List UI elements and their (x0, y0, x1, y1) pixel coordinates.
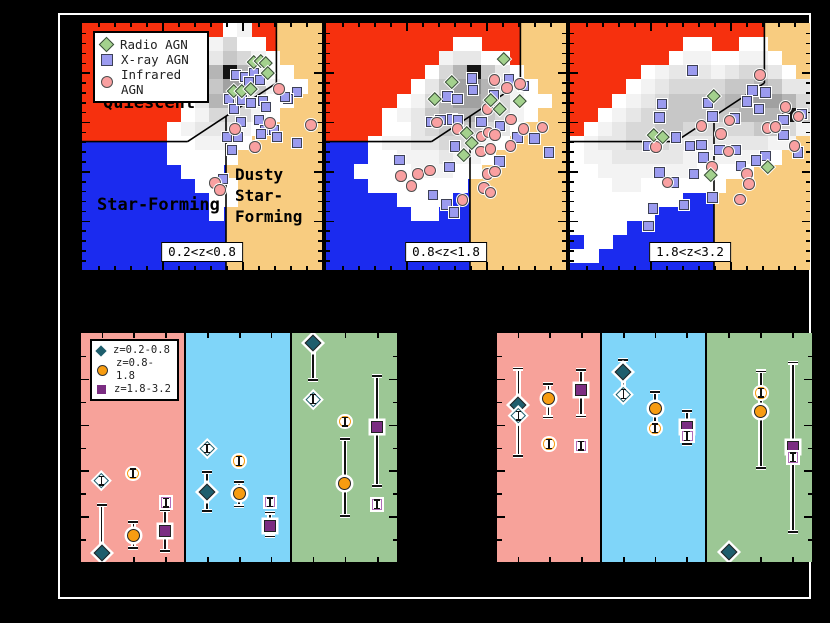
axis-tick (762, 23, 764, 27)
axis-tick (82, 171, 90, 173)
axis-tick (326, 161, 330, 163)
circle-marker (514, 78, 526, 90)
square-marker (657, 99, 668, 110)
axis-tick (806, 211, 810, 213)
circle-marker (505, 140, 517, 152)
error-bar-cap (202, 509, 212, 513)
error-bar-cap-core (513, 368, 523, 370)
axis-tick (794, 23, 796, 27)
axis-tick (306, 266, 308, 270)
square-marker (159, 525, 171, 537)
axis-tick (114, 266, 116, 270)
axis-tick (666, 266, 668, 270)
axis-tick (162, 262, 164, 270)
axis-tick (570, 53, 574, 55)
axis-tick (534, 266, 536, 270)
square-marker (760, 87, 771, 98)
axis-tick (82, 43, 86, 45)
axis-tick (497, 539, 502, 541)
error-bar-cap-core (756, 467, 766, 469)
axis-tick (82, 122, 90, 124)
axis-tick (390, 266, 392, 270)
square-marker (648, 203, 659, 214)
axis-tick (165, 333, 167, 338)
error-bar-cap-core (265, 512, 275, 514)
error-bar-cap-core (682, 410, 692, 412)
error-bar-cap (234, 480, 244, 484)
axis-tick (389, 379, 397, 381)
axis-tick (558, 171, 566, 173)
open-marker-minibar-cap (99, 484, 105, 485)
axis-tick (326, 260, 330, 262)
redshift-label: 1.8<z<3.2 (649, 242, 731, 262)
error-bar-cap-core (788, 362, 798, 364)
z3-legend-label: z=1.8-3.2 (114, 383, 171, 396)
axis-tick (318, 112, 322, 114)
open-marker-minibar-cap (684, 440, 690, 441)
error-bar-cap-core (160, 509, 170, 511)
axis-tick (808, 539, 813, 541)
axis-tick (314, 221, 322, 223)
error-bar-cap-core (128, 547, 138, 549)
error-bar-cap (756, 466, 766, 470)
axis-tick (497, 516, 505, 518)
square-marker (742, 96, 753, 107)
axis-tick (806, 63, 810, 65)
circle-marker (501, 82, 513, 94)
axis-tick (326, 132, 330, 134)
infrared-agn-circle-icon (101, 76, 113, 88)
axis-tick (178, 266, 180, 270)
axis-tick (586, 23, 588, 27)
axis-tick (81, 516, 89, 518)
axis-tick (746, 266, 748, 270)
axis-tick (326, 250, 330, 252)
axis-tick (792, 557, 794, 562)
agn-legend: Radio AGN X-ray AGN Infrared AGN (93, 31, 209, 103)
open-marker-minibar-cap (267, 506, 273, 507)
axis-tick (470, 266, 472, 270)
axis-tick (81, 356, 86, 358)
axis-tick (81, 425, 89, 427)
error-bar-cap (543, 415, 553, 419)
axis-tick (318, 211, 322, 213)
axis-tick (242, 23, 244, 31)
axis-tick (82, 92, 86, 94)
error-bar-cap (372, 484, 382, 488)
axis-tick (226, 266, 228, 270)
uvj-plot-layer (570, 23, 810, 270)
open-marker-minibar-cap (684, 431, 690, 432)
axis-tick (82, 250, 86, 252)
axis-tick (178, 23, 180, 27)
axis-tick (239, 333, 241, 338)
axis-tick (804, 425, 812, 427)
axis-tick (570, 72, 578, 74)
axis-tick (806, 181, 810, 183)
error-bar-cap (160, 549, 170, 553)
axis-tick (318, 43, 322, 45)
open-marker-minibar-cap (621, 389, 627, 390)
agn-legend-row-radio: Radio AGN (101, 37, 201, 52)
error-bar-cap-core (340, 438, 350, 440)
axis-tick (389, 470, 397, 472)
axis-tick (518, 266, 520, 270)
uvj-panel-z1: Quiescent Star-Forming Dusty Star- Formi… (82, 23, 322, 270)
axis-tick (562, 112, 566, 114)
dusty-label-line1: Dusty (235, 164, 302, 185)
axis-tick (82, 221, 90, 223)
axis-tick (422, 266, 424, 270)
axis-tick (562, 142, 566, 144)
uvj-plot-layer (326, 23, 566, 270)
uvj-panel-z3: 1.8<z<3.2 (570, 23, 810, 270)
open-marker-minibar-cap (204, 444, 210, 445)
xray-agn-square-icon (101, 54, 113, 66)
axis-tick (165, 557, 167, 562)
circle-marker (734, 194, 746, 206)
error-bar-cap-core (650, 391, 660, 393)
axis-tick (804, 470, 812, 472)
open-marker-minibar-cap (342, 417, 348, 418)
circle-marker (715, 128, 727, 140)
error-bar-cap (788, 361, 798, 365)
axis-tick (682, 266, 684, 270)
axis-tick (562, 92, 566, 94)
axis-tick (562, 181, 566, 183)
axis-tick (562, 43, 566, 45)
axis-tick (82, 211, 86, 213)
error-bar-core (760, 369, 762, 470)
axis-tick (82, 191, 86, 193)
axis-tick (728, 333, 730, 338)
square-marker (452, 94, 463, 105)
circle-marker (542, 392, 555, 405)
z1-legend-label: z=0.2-0.8 (113, 344, 170, 357)
axis-tick (81, 379, 89, 381)
axis-tick (802, 72, 810, 74)
circle-marker (770, 121, 782, 133)
circle-marker (249, 141, 261, 153)
axis-tick (133, 333, 135, 338)
axis-tick (326, 53, 330, 55)
error-bar-cap-core (202, 510, 212, 512)
axis-tick (502, 23, 504, 27)
axis-tick (570, 142, 574, 144)
axis-tick (239, 557, 241, 562)
axis-tick (562, 33, 566, 35)
axis-tick (326, 43, 330, 45)
open-marker-minibar-cap (652, 432, 658, 433)
square-marker (654, 112, 665, 123)
axis-tick (81, 539, 86, 541)
square-marker (754, 104, 765, 115)
axis-tick (497, 402, 502, 404)
axis-tick (486, 262, 488, 270)
open-marker-minibar-cap (236, 465, 242, 466)
error-bar-cap (372, 374, 382, 378)
axis-tick (806, 240, 810, 242)
axis-tick (326, 63, 330, 65)
error-bar-cap (128, 546, 138, 550)
axis-tick (655, 333, 657, 338)
circle-marker (431, 117, 443, 129)
z1-diamond-icon (95, 345, 106, 356)
fraction-plot-layer (497, 333, 812, 562)
star-forming-region-label: Star-Forming (97, 195, 220, 216)
axis-tick (730, 23, 732, 31)
square-marker (760, 151, 771, 162)
redshift-label: 0.2<z<0.8 (161, 242, 243, 262)
circle-marker (412, 168, 424, 180)
error-bar-cap (308, 378, 318, 382)
axis-tick (497, 356, 502, 358)
axis-tick (314, 171, 322, 173)
redshift-legend: z=0.2-0.8 z=0.8-1.8 z=1.8-3.2 (90, 339, 179, 401)
axis-tick (714, 23, 716, 27)
uvj-boundary-lines (326, 23, 566, 270)
axis-tick (194, 266, 196, 270)
axis-tick (486, 23, 488, 31)
axis-tick (562, 201, 566, 203)
axis-tick (558, 122, 566, 124)
axis-tick (358, 266, 360, 270)
axis-tick (318, 201, 322, 203)
axis-tick (602, 23, 604, 27)
axis-tick (374, 23, 376, 27)
square-marker (575, 384, 587, 396)
open-marker-minibar-cap (546, 448, 552, 449)
error-bar-cap (788, 530, 798, 534)
axis-tick (389, 516, 397, 518)
axis-tick (390, 23, 392, 27)
axis-tick (570, 63, 574, 65)
dusty-label-line2: Star- (235, 185, 302, 206)
square-marker (394, 155, 405, 166)
axis-tick (326, 181, 330, 183)
error-bar-cap (682, 442, 692, 446)
error-bar-cap (202, 470, 212, 474)
open-marker-minibar-cap (163, 506, 169, 507)
circle-marker (229, 123, 241, 135)
axis-tick (730, 262, 732, 270)
circle-marker (395, 170, 407, 182)
axis-tick (326, 201, 330, 203)
axis-tick (82, 161, 86, 163)
axis-tick (623, 557, 625, 562)
axis-tick (438, 23, 440, 27)
error-bar-cap-core (543, 383, 553, 385)
axis-tick (98, 23, 100, 27)
axis-tick (760, 333, 762, 338)
circle-marker (305, 119, 317, 131)
open-marker-minibar-cap (621, 398, 627, 399)
axis-tick (806, 161, 810, 163)
axis-tick (562, 53, 566, 55)
axis-tick (318, 161, 322, 163)
error-bar-cap-core (576, 416, 586, 418)
axis-tick (562, 211, 566, 213)
square-marker (751, 155, 762, 166)
uvj-panel-z2: 0.8<z<1.8 (326, 23, 566, 270)
square-marker (227, 145, 238, 156)
error-bar-cap-core (97, 504, 107, 506)
axis-tick (258, 23, 260, 27)
axis-tick (623, 333, 625, 338)
circle-marker (406, 180, 418, 192)
error-bar-cap (756, 369, 766, 373)
axis-tick (389, 425, 397, 427)
axis-tick (806, 260, 810, 262)
axis-tick (81, 493, 86, 495)
axis-tick (393, 493, 398, 495)
axis-tick (806, 151, 810, 153)
axis-tick (570, 33, 574, 35)
open-marker-minibar-cap (516, 419, 522, 420)
axis-tick (650, 262, 652, 270)
error-bar-cap (340, 514, 350, 518)
axis-tick (98, 266, 100, 270)
axis-tick (550, 266, 552, 270)
axis-tick (318, 181, 322, 183)
error-bar-cap-core (340, 515, 350, 517)
open-marker-minibar-cap (374, 499, 380, 500)
axis-tick (804, 379, 812, 381)
radio-agn-legend-label: Radio AGN (120, 37, 188, 52)
axis-tick (802, 171, 810, 173)
error-bar-cap-core (308, 379, 318, 381)
axis-tick (802, 122, 810, 124)
agn-legend-row-infrared: Infrared AGN (101, 67, 201, 97)
axis-tick (82, 142, 86, 144)
axis-tick (406, 23, 408, 31)
axis-tick (210, 266, 212, 270)
square-marker (529, 133, 540, 144)
axis-tick (258, 266, 260, 270)
axis-tick (274, 266, 276, 270)
axis-tick (808, 402, 813, 404)
axis-tick (326, 151, 330, 153)
axis-tick (762, 266, 764, 270)
axis-tick (82, 112, 86, 114)
circle-marker (505, 114, 517, 126)
square-marker (428, 190, 439, 201)
square-marker (476, 117, 487, 128)
axis-tick (454, 266, 456, 270)
axis-tick (102, 333, 104, 338)
axis-tick (792, 333, 794, 338)
circle-marker (489, 129, 501, 141)
error-bar-cap (576, 368, 586, 372)
axis-tick (82, 260, 86, 262)
square-marker (272, 132, 283, 143)
fraction-panel-right (497, 333, 812, 562)
axis-tick (570, 161, 574, 163)
square-marker (449, 207, 460, 218)
axis-tick (82, 181, 86, 183)
error-bar-cap-core (128, 521, 138, 523)
axis-tick (306, 23, 308, 27)
axis-tick (562, 191, 566, 193)
circle-marker (650, 141, 662, 153)
axis-tick (82, 201, 86, 203)
axis-tick (326, 211, 330, 213)
axis-tick (550, 23, 552, 27)
axis-tick (806, 33, 810, 35)
circle-marker (518, 123, 530, 135)
axis-tick (326, 221, 334, 223)
axis-tick (570, 230, 574, 232)
axis-tick (570, 82, 574, 84)
axis-tick (562, 151, 566, 153)
axis-tick (655, 557, 657, 562)
redshift-legend-row-z1: z=0.2-0.8 (97, 344, 172, 357)
error-bar-cap-core (265, 536, 275, 538)
axis-tick (562, 102, 566, 104)
error-bar-cap-core (682, 443, 692, 445)
axis-tick (806, 43, 810, 45)
open-marker-minibar-cap (578, 441, 584, 442)
axis-tick (518, 557, 520, 562)
axis-tick (558, 72, 566, 74)
axis-tick (342, 23, 344, 27)
circle-marker (489, 166, 501, 178)
axis-tick (226, 23, 228, 27)
open-marker-minibar-cap (546, 439, 552, 440)
error-bar-cap (682, 409, 692, 413)
axis-tick (470, 23, 472, 27)
axis-tick (581, 333, 583, 338)
axis-tick (570, 191, 574, 193)
axis-tick (570, 240, 574, 242)
circle-marker (273, 83, 285, 95)
error-bar-cap-core (372, 375, 382, 377)
square-marker (544, 147, 555, 158)
radio-agn-diamond-icon (99, 37, 115, 53)
axis-tick (377, 557, 379, 562)
axis-tick (778, 266, 780, 270)
square-marker (707, 192, 718, 203)
xray-agn-legend-label: X-ray AGN (121, 52, 189, 67)
axis-tick (422, 23, 424, 27)
axis-tick (345, 557, 347, 562)
axis-tick (634, 266, 636, 270)
open-marker-minibar-cap (267, 497, 273, 498)
redshift-legend-row-z2: z=0.8-1.8 (97, 357, 172, 383)
axis-tick (326, 171, 334, 173)
circle-marker (264, 117, 276, 129)
axis-tick (497, 470, 505, 472)
axis-tick (82, 53, 86, 55)
axis-tick (162, 23, 164, 31)
axis-tick (130, 266, 132, 270)
axis-tick (318, 230, 322, 232)
axis-tick (374, 266, 376, 270)
z2-legend-label: z=0.8-1.8 (116, 357, 172, 383)
axis-tick (686, 557, 688, 562)
square-marker (643, 221, 654, 232)
axis-tick (562, 82, 566, 84)
open-marker-minibar-cap (578, 449, 584, 450)
open-marker-minibar-cap (310, 394, 316, 395)
square-marker (468, 85, 479, 96)
axis-tick (82, 63, 86, 65)
axis-tick (210, 23, 212, 27)
axis-tick (497, 379, 505, 381)
axis-tick (393, 356, 398, 358)
axis-tick (570, 221, 578, 223)
axis-tick (326, 102, 330, 104)
